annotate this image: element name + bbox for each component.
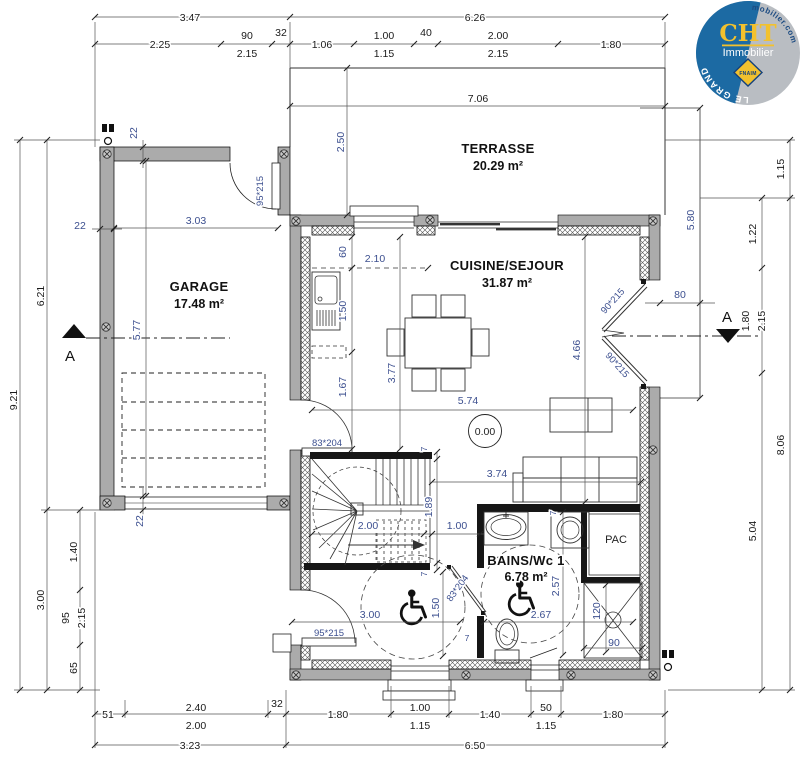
dim-label: 1.00 <box>447 520 468 532</box>
svg-text:www.cht-immobilier.com: www.cht-immobilier.com <box>0 0 799 44</box>
dim-label: 5.74 <box>458 395 479 407</box>
dim-label: 2.25 <box>150 39 171 51</box>
dim-label: 2.57 <box>550 576 562 597</box>
dim-label: 1.15 <box>410 720 431 732</box>
dim-label: 3.74 <box>487 468 508 480</box>
dim-label: 4.66 <box>571 340 583 361</box>
dim-label: 3.03 <box>186 215 207 227</box>
logo-fnaim-badge: FNAIM <box>739 71 756 77</box>
dim-label: 1.22 <box>747 224 759 245</box>
dim-label: 7 <box>419 571 429 576</box>
wheelchair-icon <box>401 590 425 624</box>
dim-label: 1.80 <box>328 709 349 721</box>
dim-label: 1.67 <box>337 377 349 398</box>
door-size-label: 83*204 <box>312 438 342 449</box>
dim-label: 32 <box>271 698 283 710</box>
dim-label: 2.00 <box>358 520 379 532</box>
dim-label: 9.21 <box>8 390 20 411</box>
dim-label: 3.00 <box>360 609 381 621</box>
dim-label: 6.50 <box>465 740 486 752</box>
dim-label: 5.04 <box>747 521 759 542</box>
dim-label: 1.80 <box>603 709 624 721</box>
dim-label: 22 <box>74 220 86 232</box>
dim-label: 90 <box>608 637 620 649</box>
dim-label: 1.00 <box>374 30 395 42</box>
logo-right-arc-text: www.cht-immobilier.com <box>0 0 799 44</box>
logo-brand: CHT <box>719 20 776 47</box>
room-name-bains: BAINS/Wc 1 <box>487 553 564 568</box>
dining-set <box>387 295 489 391</box>
dim-label: 1.89 <box>423 497 435 518</box>
dim-label: 22 <box>134 515 146 527</box>
dim-label: 2.15 <box>76 608 88 629</box>
dim-label: 1.40 <box>480 709 501 721</box>
agency-logo: CHT Immobilier FNAIM PLELAN LE GRAND www… <box>0 0 800 105</box>
level-value: 0.00 <box>475 426 496 438</box>
section-line <box>62 324 758 343</box>
door-size-label: 95*215 <box>314 628 344 639</box>
dim-label: 2.67 <box>531 609 552 621</box>
room-area-cuisine: 31.87 m² <box>482 276 532 290</box>
dim-label: 2.00 <box>186 720 207 732</box>
dim-label: 22 <box>128 127 140 139</box>
dim-label: 90 <box>241 30 253 42</box>
room-name-cuisine: CUISINE/SEJOUR <box>450 258 564 273</box>
dim-label: 2.40 <box>186 702 207 714</box>
dim-label: 7 <box>548 510 558 515</box>
section-label-right: A <box>722 309 732 326</box>
dim-label: 1.15 <box>536 720 557 732</box>
dim-label: 32 <box>275 27 287 39</box>
section-label-left: A <box>65 348 75 365</box>
dim-label: 60 <box>337 246 349 258</box>
dim-label: 65 <box>68 662 80 674</box>
room-area-bains: 6.78 m² <box>504 570 547 584</box>
dim-label: 40 <box>420 27 432 39</box>
dimension-ticks <box>17 14 793 748</box>
dim-label: 6.21 <box>35 286 47 307</box>
dim-label: 51 <box>102 709 114 721</box>
dimension-lines <box>14 17 795 748</box>
door-size-label: 83*204 <box>445 573 472 604</box>
house-walls-gray <box>290 215 660 680</box>
sofa <box>513 398 637 502</box>
dim-label: 1.50 <box>337 301 349 322</box>
dim-label: 2.50 <box>335 132 347 153</box>
room-name-garage: GARAGE <box>170 279 229 294</box>
dim-label: 50 <box>540 702 552 714</box>
floor-plan-page: 3.47 6.26 2.25 90 2.15 32 1.06 1.00 1.15… <box>0 0 812 761</box>
dim-label: 7.06 <box>468 93 489 105</box>
dimension-labels: 3.47 6.26 2.25 90 2.15 32 1.06 1.00 1.15… <box>8 12 787 752</box>
dim-label: 1.80 <box>601 39 622 51</box>
dim-label: 5.77 <box>131 320 143 341</box>
dim-label: 3.47 <box>180 12 201 24</box>
room-name-terrasse: TERRASSE <box>461 141 534 156</box>
dim-label: 7 <box>465 633 470 643</box>
dim-label: 1.40 <box>68 542 80 563</box>
dim-label: 1.50 <box>430 598 442 619</box>
dim-label: 2.10 <box>365 253 386 265</box>
dim-label: 8.06 <box>775 435 787 456</box>
dim-label: 2.15 <box>756 311 768 332</box>
dim-label: 2.15 <box>488 48 509 60</box>
dim-label: 5.80 <box>685 210 697 231</box>
kitchen-fixtures <box>312 268 428 358</box>
dim-label: 1.80 <box>740 311 752 332</box>
dim-label: 95 <box>60 612 72 624</box>
dim-label: 1.00 <box>410 702 431 714</box>
dim-label: 120 <box>591 602 603 620</box>
logo-subtitle: Immobilier <box>723 47 774 59</box>
doors-swings <box>302 279 647 646</box>
dim-label: 6.26 <box>465 12 486 24</box>
floor-plan-drawing: 3.47 6.26 2.25 90 2.15 32 1.06 1.00 1.15… <box>0 0 812 761</box>
door-size-label: 95*215 <box>255 176 266 206</box>
dim-label: 3.23 <box>180 740 201 752</box>
dim-label: 2.15 <box>237 48 258 60</box>
dim-label: 1.15 <box>374 48 395 60</box>
dim-label: 80 <box>674 289 686 301</box>
dim-label: 7 <box>419 446 429 451</box>
room-area-terrasse: 20.29 m² <box>473 159 523 173</box>
dim-label: 1.06 <box>312 39 333 51</box>
dim-label: 3.77 <box>386 363 398 384</box>
staircase <box>312 459 430 565</box>
dim-label: 1.15 <box>775 159 787 180</box>
room-area-garage: 17.48 m² <box>174 297 224 311</box>
dim-label: 2.00 <box>488 30 509 42</box>
dim-label: 3.00 <box>35 590 47 611</box>
room-name-pac: PAC <box>605 534 627 546</box>
